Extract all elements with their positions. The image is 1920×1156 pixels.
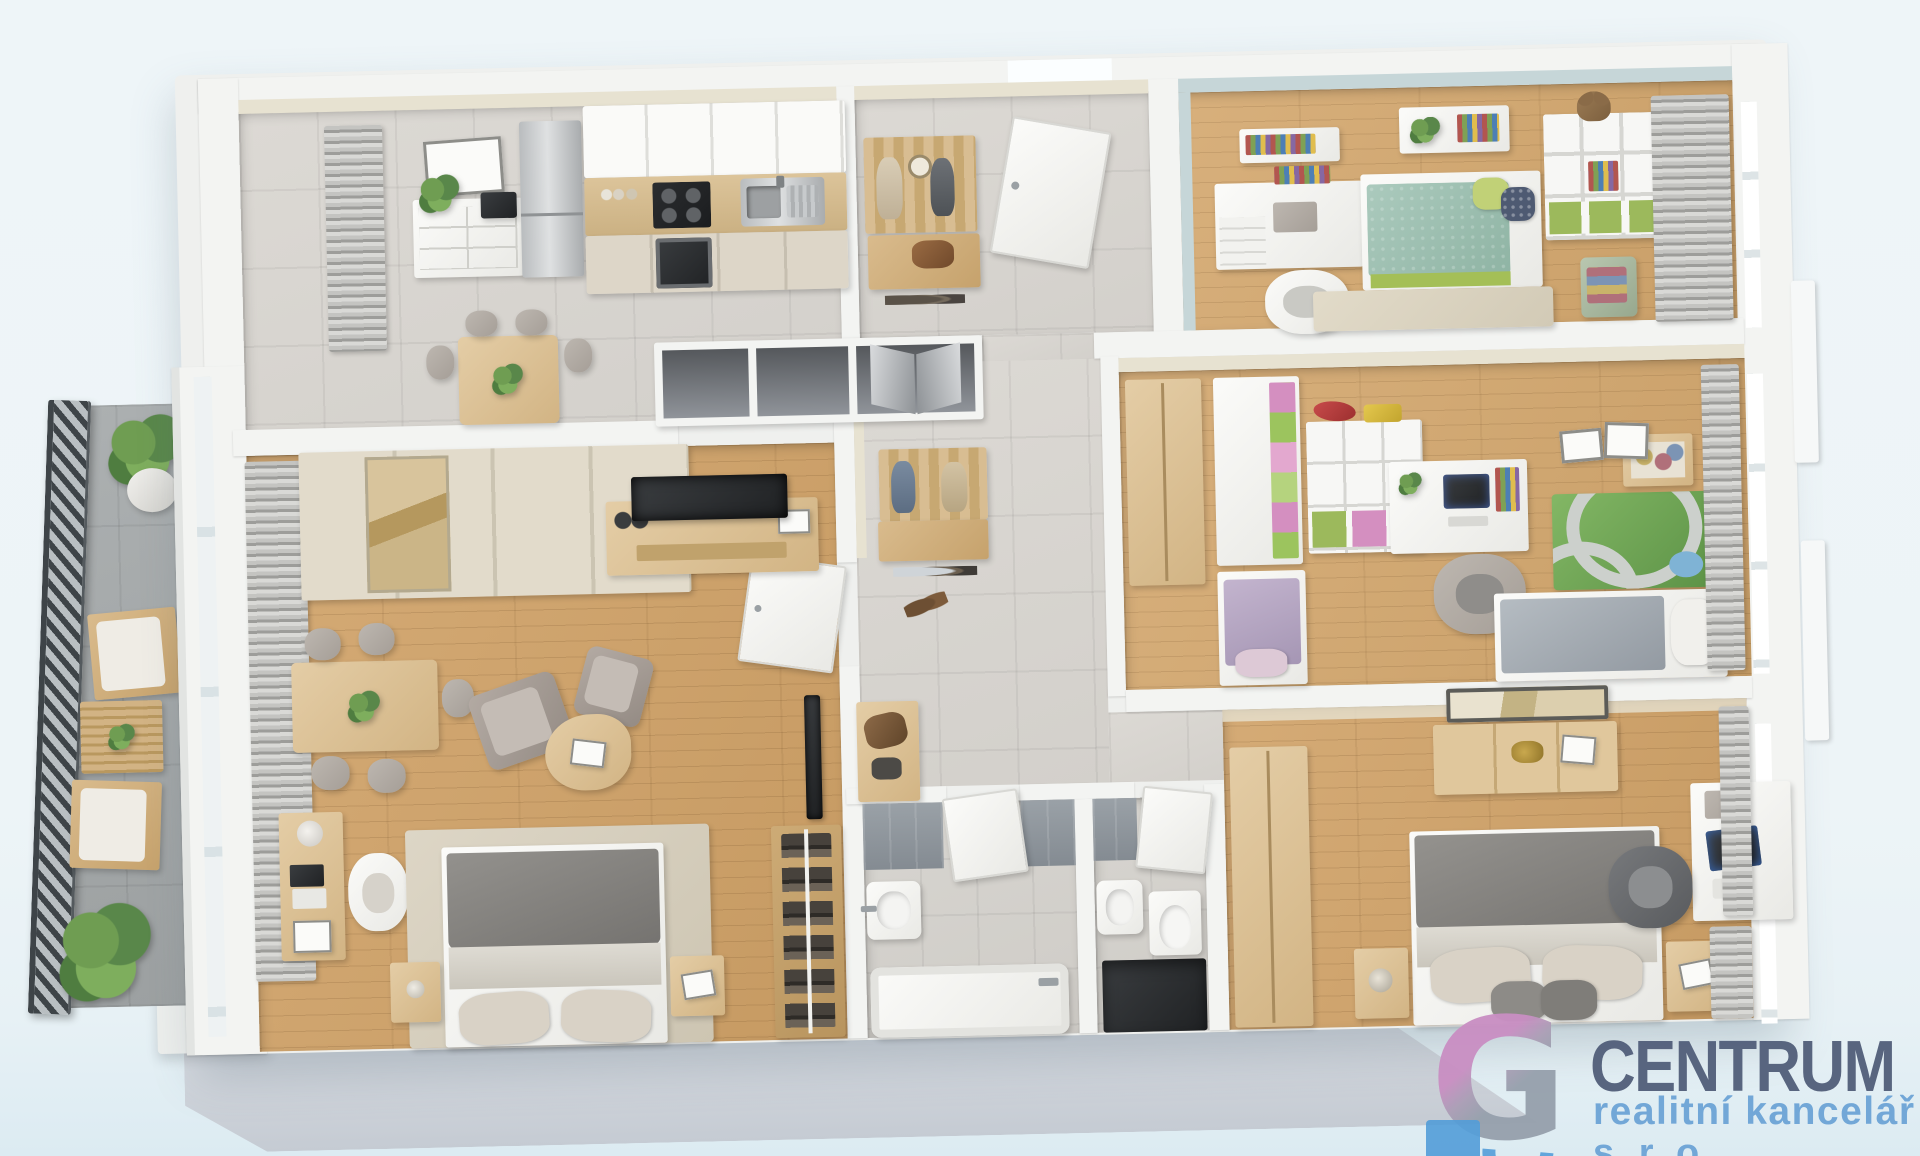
kids1-desk [1214, 181, 1364, 270]
dining-table-plant [490, 362, 525, 397]
open-closet-niche-folding [856, 343, 976, 414]
kids2-wall-frame-1 [1559, 428, 1604, 464]
door-handle [1011, 181, 1020, 190]
wall-left-top [198, 78, 245, 373]
books-row [1457, 113, 1500, 142]
bed-pillow [560, 989, 652, 1044]
kids2-bed-small [1217, 570, 1308, 686]
sideboard-plant [416, 173, 463, 214]
master-mirror [1446, 685, 1609, 723]
bathroom-tile-wall-left [862, 802, 943, 870]
living-nightstand-right [670, 955, 725, 1016]
entry-coat-rack [863, 135, 977, 234]
kids2-bed-blanket [1500, 596, 1666, 674]
wardrobe-seam [1266, 751, 1275, 1023]
teddy-bear [1576, 91, 1611, 122]
hall-console [856, 701, 920, 802]
book-on-table [570, 738, 607, 768]
armchair-cushion [96, 616, 166, 692]
balcony-armchair-1 [87, 607, 183, 701]
living-dining-chair [304, 628, 341, 661]
bed-pillow [457, 989, 551, 1048]
open-closet-niche [662, 349, 750, 419]
living-nightstand-left [390, 962, 441, 1023]
living-dining-chair [311, 756, 350, 791]
cube-green-boxes [1549, 200, 1660, 234]
sink-basin [746, 186, 781, 219]
bathroom-door-open [941, 788, 1028, 882]
kitchen-chair [465, 310, 498, 337]
kitchen-lower-cabinets [585, 230, 848, 294]
laptop-open [290, 864, 324, 887]
imac-screen [1443, 474, 1490, 509]
kids1-wall-shelf-1 [1239, 127, 1340, 163]
french-balcony-rail-1 [1791, 280, 1819, 462]
desk-cds [1495, 467, 1520, 512]
oven [656, 237, 713, 288]
small-bag [871, 757, 901, 780]
fridge-split [521, 212, 583, 216]
kids2-play-rug [1552, 491, 1710, 591]
wardrobe-color-doors [1269, 382, 1299, 559]
desk-books [293, 920, 332, 953]
living-dining-chair [367, 758, 406, 793]
kids1-toy-chair [1580, 256, 1637, 317]
record-player [480, 192, 517, 219]
table-plant [346, 689, 383, 724]
keyboard [1448, 516, 1488, 527]
wall-mounted-tv [804, 695, 823, 819]
desk-lamp [297, 820, 324, 847]
books-row [1245, 134, 1315, 156]
tv-flatscreen [631, 474, 788, 522]
balcony-armchair-2 [69, 780, 162, 871]
living-desk-chair [347, 852, 409, 931]
fridge [519, 120, 585, 277]
folding-door-panel [870, 344, 916, 414]
company-suffix: s.r.o. [1593, 1132, 1724, 1156]
kids2-wardrobe-colored [1213, 376, 1303, 566]
corridor-floor [1108, 710, 1224, 783]
floor-plan-render: G CENTRUM realitní kancelář s.r.o. [0, 0, 1920, 1156]
gold-decor [1511, 741, 1543, 764]
master-nightstand-left [1354, 948, 1410, 1019]
kitchen-upper-cabinets [583, 100, 847, 178]
logo-blue-square [1426, 1120, 1480, 1156]
rug-pond [1669, 551, 1704, 578]
shelf-plant-box [1407, 117, 1444, 144]
living-double-bed [441, 843, 667, 1048]
kids1-rug [1313, 286, 1554, 331]
bag-on-bench [912, 240, 955, 269]
living-desk [278, 812, 345, 961]
kids1-curtain-right [1651, 94, 1734, 322]
wardrobe-mirror-panel [364, 455, 451, 593]
chair-base [1628, 866, 1673, 909]
desk-plant [1397, 471, 1424, 496]
cooktop [652, 181, 711, 228]
bathroom-tile-wall-right [1020, 799, 1075, 866]
master-desk-chair [1608, 845, 1694, 929]
laptop [1273, 202, 1318, 233]
shoes-under-bench [885, 292, 965, 308]
tub-faucet [1038, 978, 1058, 986]
bag-on-console [861, 709, 910, 752]
kids2-curtain-right [1701, 364, 1746, 671]
kids2-wall-frame-2 [1604, 422, 1649, 459]
folding-door-panel [916, 342, 961, 414]
master-dresser [1433, 721, 1619, 795]
shoe-rack-open [771, 825, 846, 1039]
desk-drawers [1219, 217, 1266, 266]
magazine [681, 969, 717, 1000]
wc-door-open [1135, 786, 1213, 875]
bed-sheet-fold [449, 943, 662, 990]
wall-clock [908, 154, 933, 179]
kids1-pillow-navy [1501, 187, 1536, 222]
apartment-3d-plan [0, 0, 1920, 1156]
table-plant [106, 723, 137, 752]
sink-drainer [786, 185, 819, 218]
kids2-desk [1389, 459, 1529, 554]
kids1-cube-shelf [1543, 112, 1664, 241]
toilet [1148, 890, 1201, 955]
coat-hanging-light [876, 157, 903, 220]
armchair-cushion [479, 685, 554, 758]
coat-hanging-dark [930, 158, 955, 217]
hall-shoes-row [893, 563, 977, 579]
faucet [776, 176, 784, 188]
sink-faucet [861, 906, 877, 912]
chair-base [362, 873, 395, 914]
open-closet-niche [756, 346, 850, 416]
living-dining-table [291, 660, 439, 753]
kids1-wall-shelf-2 [1399, 105, 1510, 153]
magazine [1560, 734, 1596, 765]
bathtub [870, 963, 1070, 1037]
kitchen-chair [564, 338, 593, 373]
kitchen-curtain-left [324, 125, 387, 352]
cube-books [1588, 161, 1619, 192]
toy-truck-yellow [1363, 404, 1401, 423]
master-wardrobe [1229, 746, 1313, 1028]
centrum-logo-icon: G [1430, 1024, 1582, 1156]
wc-sink [1096, 880, 1143, 935]
balcony-plant-bottom [56, 894, 155, 1008]
hall-coat-rack [878, 447, 988, 521]
kids1-bed-drawer-green [1371, 271, 1511, 288]
kids2-bed [1494, 588, 1728, 681]
wc-shower-dark [1102, 958, 1208, 1032]
kitchen-chair [515, 309, 548, 336]
living-dining-chair [441, 679, 474, 718]
kitchen-sink [740, 177, 825, 227]
counter-jars [600, 187, 640, 202]
living-dining-chair [358, 623, 395, 656]
master-curtain-right [1709, 926, 1753, 1019]
master-curtain-right-upper [1718, 706, 1753, 917]
tv-stand-drawer [636, 542, 786, 561]
armchair-cushion [79, 788, 147, 862]
kids2-wood-wardrobe [1125, 378, 1206, 586]
kitchen-chair [426, 345, 455, 380]
jacket-blue [891, 461, 916, 514]
toy-blocks [1586, 267, 1627, 304]
candle-holder [1368, 968, 1393, 993]
laptop-keyboard [292, 888, 326, 909]
bathroom-sink [866, 881, 921, 940]
bed-blanket-gray [446, 849, 660, 950]
armchair-cushion [583, 654, 640, 714]
desk-books [1274, 165, 1330, 184]
kitchen-dining-table [458, 335, 560, 425]
candle [406, 980, 424, 998]
storage-niche-row [654, 335, 984, 426]
hall-bench [878, 519, 989, 561]
sink-bowl [876, 891, 911, 930]
toilet-bowl [1159, 905, 1192, 950]
wc-tile-wall [1092, 798, 1137, 861]
door-handle [754, 605, 762, 613]
kids1-bed [1360, 171, 1543, 291]
sink-bowl [1105, 889, 1134, 926]
french-balcony-rail-2 [1801, 540, 1830, 740]
hallway-opening-floor [982, 333, 1095, 362]
window-glass [194, 377, 227, 1037]
kitchen-counter [584, 172, 847, 236]
jacket-beige [941, 462, 968, 513]
kids2-small-bed-pillow [1235, 648, 1288, 677]
entry-bench [868, 233, 981, 290]
window-frame-right-1 [1741, 102, 1762, 328]
company-tagline: realitní kancelář [1593, 1090, 1916, 1134]
balcony-coffee-table [80, 700, 164, 774]
wardrobe-seam [1161, 383, 1168, 581]
